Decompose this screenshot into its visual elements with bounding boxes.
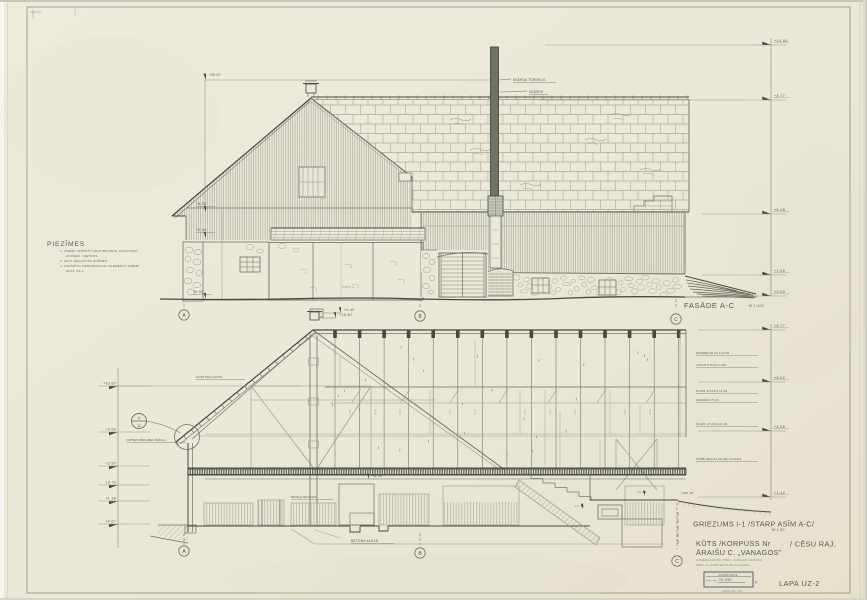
svg-text:Inv. nr.: Inv. nr. — [706, 579, 717, 583]
svg-text:183.48: 183.48 — [682, 491, 694, 495]
svg-text:DETAĻA MUCIŅAS: DETAĻA MUCIŅAS — [291, 495, 317, 499]
svg-text:VĀRTI A: VĀRTI A — [342, 285, 354, 289]
svg-text:LAPA UZ-2: LAPA UZ-2 — [779, 579, 820, 588]
svg-text:+1.34: +1.34 — [637, 490, 647, 494]
svg-text:+10.50: +10.50 — [103, 382, 116, 386]
svg-text:+8.77: +8.77 — [774, 94, 785, 98]
svg-text:+0.00: +0.00 — [193, 290, 204, 294]
svg-text:C: C — [675, 559, 679, 565]
svg-text:+6.02: +6.02 — [774, 376, 785, 380]
svg-text:F: F — [755, 580, 758, 585]
svg-text:+2.58: +2.58 — [196, 228, 207, 232]
svg-text:+1.10: +1.10 — [575, 504, 585, 508]
svg-text:+1.18: +1.18 — [105, 497, 116, 501]
svg-text:SIJAS 17×19 L=4.10: SIJAS 17×19 L=4.10 — [696, 422, 727, 426]
svg-text:ĀRAIŠU C. „VANAGOS”: ĀRAIŠU C. „VANAGOS” — [696, 548, 782, 557]
svg-text:A: A — [138, 416, 141, 421]
svg-text:+6.45: +6.45 — [774, 208, 785, 212]
svg-text:SPEC. G. ARHITEKTS UN KOLHOZS: SPEC. G. ARHITEKTS UN KOLHOZS — [696, 563, 749, 567]
svg-text:SPĀRES Ø 10 L=4.50: SPĀRES Ø 10 L=4.50 — [696, 351, 729, 355]
svg-text:+4.05: +4.05 — [196, 202, 207, 206]
svg-text:19-252: 19-252 — [719, 578, 732, 582]
svg-text:BETONA ALEJA: BETONA ALEJA — [351, 539, 378, 543]
svg-text:GRIEZUMS I-1 /STARP ASĪM A-C/: GRIEZUMS I-1 /STARP ASĪM A-C/ — [693, 520, 815, 529]
svg-text:+8.77: +8.77 — [774, 324, 785, 328]
svg-text:+2.70: +2.70 — [105, 481, 116, 485]
svg-text:LOMĒRĪJA AKAD. PROJ. J.RAGAIS: LOMĒRĪJA AKAD. PROJ. J.RAGAIS I.RADNIS — [696, 558, 762, 562]
svg-text:####/## /28: ####/## /28 — [722, 589, 742, 593]
svg-text:+0.40: +0.40 — [344, 308, 355, 312]
svg-text:+0.00: +0.00 — [774, 290, 785, 294]
svg-text:PIEZĪMES: PIEZĪMES — [47, 240, 85, 248]
svg-text:+10.84: +10.84 — [774, 39, 788, 43]
svg-text:+1.55: +1.55 — [774, 269, 785, 273]
svg-text:+0.55: +0.55 — [372, 474, 382, 478]
svg-text:SKĀRDS: SKĀRDS — [529, 90, 543, 94]
svg-text:+5.06: +5.06 — [105, 428, 116, 432]
svg-text:ATZĪMES - METROS.: ATZĪMES - METROS. — [66, 254, 99, 258]
svg-text:SKĀRDA TŪRNELIS: SKĀRDA TŪRNELIS — [513, 78, 546, 82]
svg-text:2. SKAT. RELATĪVĀS ATZĪMES.: 2. SKAT. RELATĪVĀS ATZĪMES. — [60, 259, 108, 263]
svg-text:ANGĀRI 17×21: ANGĀRI 17×21 — [696, 398, 719, 402]
svg-text:M 1:100: M 1:100 — [749, 304, 764, 308]
svg-text:SKAT. UZ-1.: SKAT. UZ-1. — [66, 269, 85, 273]
svg-text:+4.28: +4.28 — [774, 425, 785, 429]
svg-text:KOPTURU KOKS: KOPTURU KOKS — [196, 375, 222, 379]
svg-text:LATAS 5,5×10 c=90: LATAS 5,5×10 c=90 — [696, 363, 726, 367]
svg-text:+20.67: +20.67 — [209, 73, 221, 77]
svg-text:SIJAS 17×18 L=4.10: SIJAS 17×18 L=4.10 — [696, 389, 727, 393]
svg-text:4. UZRĀDĪTO KONSTRUKCIJU ELEM: 4. UZRĀDĪTO KONSTRUKCIJU ELEMENTU IZMĒRI — [60, 264, 139, 268]
svg-text:M 1:50: M 1:50 — [772, 528, 785, 532]
svg-text:+1.42: +1.42 — [774, 491, 785, 495]
svg-text:+3.50: +3.50 — [105, 462, 116, 466]
svg-text:STABI Ø10,5+10×18+10×18,5: STABI Ø10,5+10×18+10×18,5 — [696, 457, 741, 461]
svg-text:KOPNES PĀRKARES DETAĻA: KOPNES PĀRKARES DETAĻA — [126, 438, 166, 442]
svg-text:FASĀDE A-C: FASĀDE A-C — [684, 301, 735, 310]
svg-text:SATURA KARTE: SATURA KARTE — [718, 574, 737, 577]
svg-text:C: C — [674, 317, 678, 323]
svg-text:+0.07: +0.07 — [105, 520, 116, 524]
svg-text:/ CĒSU RAJ.: / CĒSU RAJ. — [790, 540, 836, 549]
svg-text:+10.67: +10.67 — [339, 313, 353, 317]
svg-text:10: 10 — [137, 424, 141, 428]
svg-text:1. IZMĒRI UZRĀDĪTI CENTIMETRO: 1. IZMĒRI UZRĀDĪTI CENTIMETROS, AUGSTUMA — [60, 249, 138, 253]
svg-text:KŪTS /KORPUSS Nr: KŪTS /KORPUSS Nr — [696, 539, 771, 548]
